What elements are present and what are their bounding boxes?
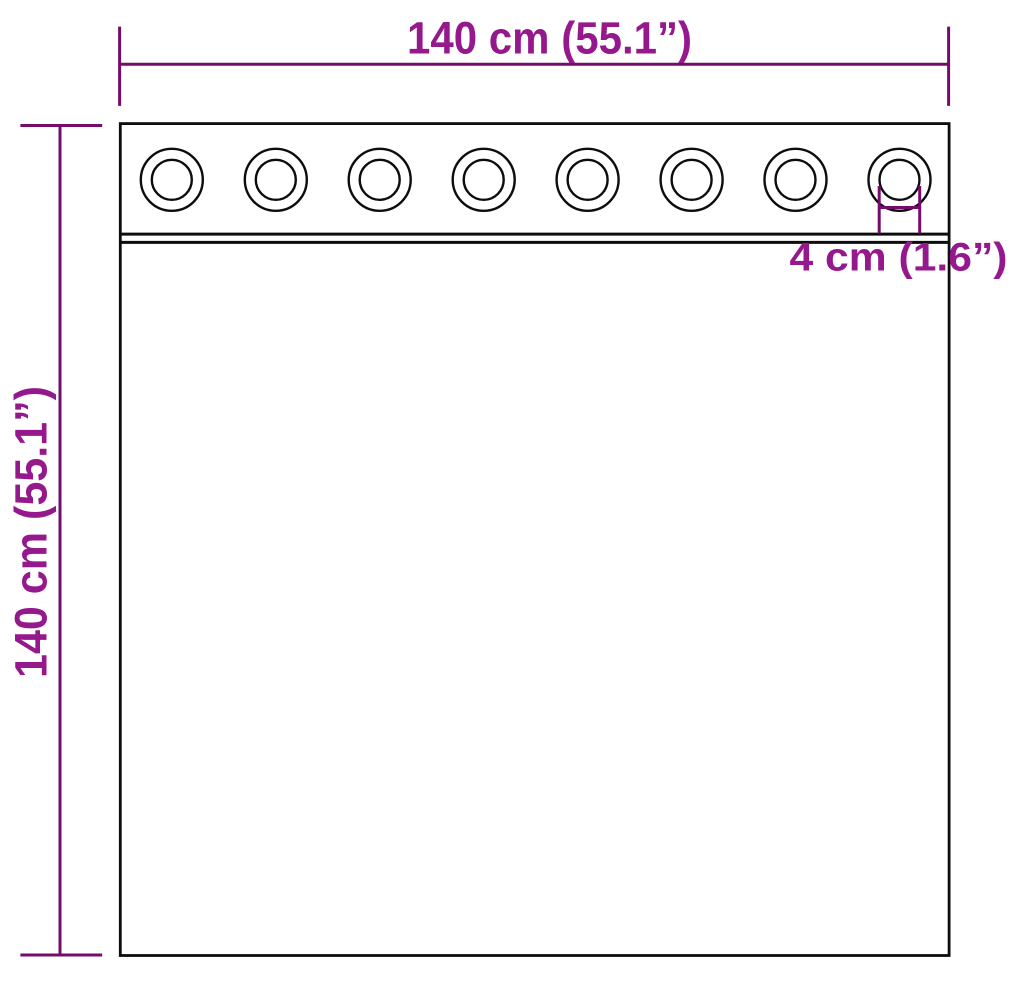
svg-text:4 cm (1.6”): 4 cm (1.6”) [790, 235, 1008, 279]
svg-text:140 cm (55.1”): 140 cm (55.1”) [407, 13, 692, 64]
svg-text:140 cm (55.1”): 140 cm (55.1”) [6, 386, 57, 678]
